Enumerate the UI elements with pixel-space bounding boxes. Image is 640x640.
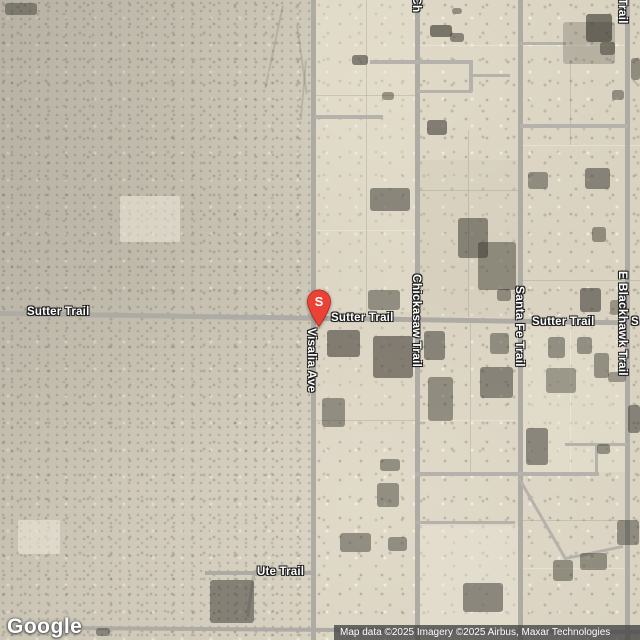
building	[5, 3, 37, 15]
building	[592, 227, 606, 242]
building	[597, 444, 610, 454]
building	[373, 336, 413, 378]
road-minor	[415, 472, 599, 476]
attribution-bar: Map data ©2025 Imagery ©2025 Airbus, Max…	[334, 625, 640, 640]
building	[594, 353, 609, 378]
road-label-sutter-trail-edge: S	[631, 315, 639, 329]
building	[490, 333, 509, 354]
building	[210, 580, 254, 623]
building	[452, 8, 462, 14]
road-label-e-blackhawk-trail-top: Trail	[616, 0, 630, 24]
building	[600, 42, 615, 55]
building	[548, 337, 565, 358]
road-label-sutter-trail-east: Sutter Trail	[532, 315, 594, 329]
map-canvas[interactable]: Sutter TrailSutter TrailSutter TrailSUte…	[0, 0, 640, 640]
parcel-line	[570, 60, 571, 145]
building	[480, 367, 513, 398]
cleared-pad	[120, 196, 180, 242]
building	[580, 553, 607, 570]
road-label-visalia-ave: Visalia Ave	[305, 328, 319, 392]
building	[340, 533, 371, 552]
building	[631, 58, 640, 80]
building	[380, 459, 400, 471]
road-minor	[315, 115, 383, 119]
road-label-sutter-trail-center: Sutter Trail	[331, 311, 393, 325]
road-minor	[520, 124, 628, 128]
building	[382, 92, 394, 100]
building	[368, 290, 400, 310]
parcel-line	[520, 145, 640, 146]
road-label-e-blackhawk-trail: E Blackhawk Trail	[616, 271, 630, 376]
road-minor	[469, 62, 473, 92]
building	[580, 288, 601, 312]
building	[377, 483, 399, 507]
building	[617, 520, 639, 545]
road-minor	[520, 42, 566, 45]
building	[628, 405, 640, 433]
road-minor	[472, 74, 510, 77]
road-minor	[415, 521, 515, 524]
building	[370, 188, 410, 211]
google-logo[interactable]: Google	[7, 615, 82, 639]
building	[526, 428, 548, 465]
building	[322, 398, 345, 427]
building	[553, 560, 573, 581]
building	[612, 90, 624, 100]
building	[428, 377, 453, 421]
building	[463, 583, 503, 612]
building	[96, 628, 110, 636]
road-label-sutter-trail-west: Sutter Trail	[27, 305, 89, 319]
cleared-pad	[18, 520, 60, 554]
building	[388, 537, 407, 551]
building	[478, 242, 516, 290]
road-label-chickasaw-trail-top: Ch	[410, 0, 424, 12]
road-label-santa-fe-trail: Santa Fe Trail	[513, 286, 527, 367]
building	[424, 331, 445, 360]
building	[585, 168, 610, 189]
parcel-line	[420, 190, 518, 191]
map-marker[interactable]: S	[307, 287, 331, 330]
map-pin-icon: S	[307, 287, 331, 330]
building	[352, 55, 368, 65]
parcel-line	[470, 322, 471, 472]
building	[427, 120, 447, 135]
building	[546, 368, 576, 393]
road-minor	[370, 60, 473, 64]
building	[497, 289, 511, 301]
building	[586, 14, 612, 42]
road-label-ute-trail: Ute Trail	[257, 565, 304, 579]
road-label-chickasaw-trail: Chickasaw Trail	[410, 274, 424, 367]
marker-letter: S	[315, 294, 324, 309]
parcel-line	[520, 520, 625, 521]
building	[577, 337, 592, 354]
parcel-line	[570, 322, 571, 472]
building	[450, 33, 464, 42]
building	[430, 25, 452, 37]
parcel-line	[366, 0, 367, 312]
road-minor	[517, 477, 567, 561]
building	[327, 330, 360, 357]
building	[528, 172, 548, 189]
road-minor	[417, 90, 472, 93]
